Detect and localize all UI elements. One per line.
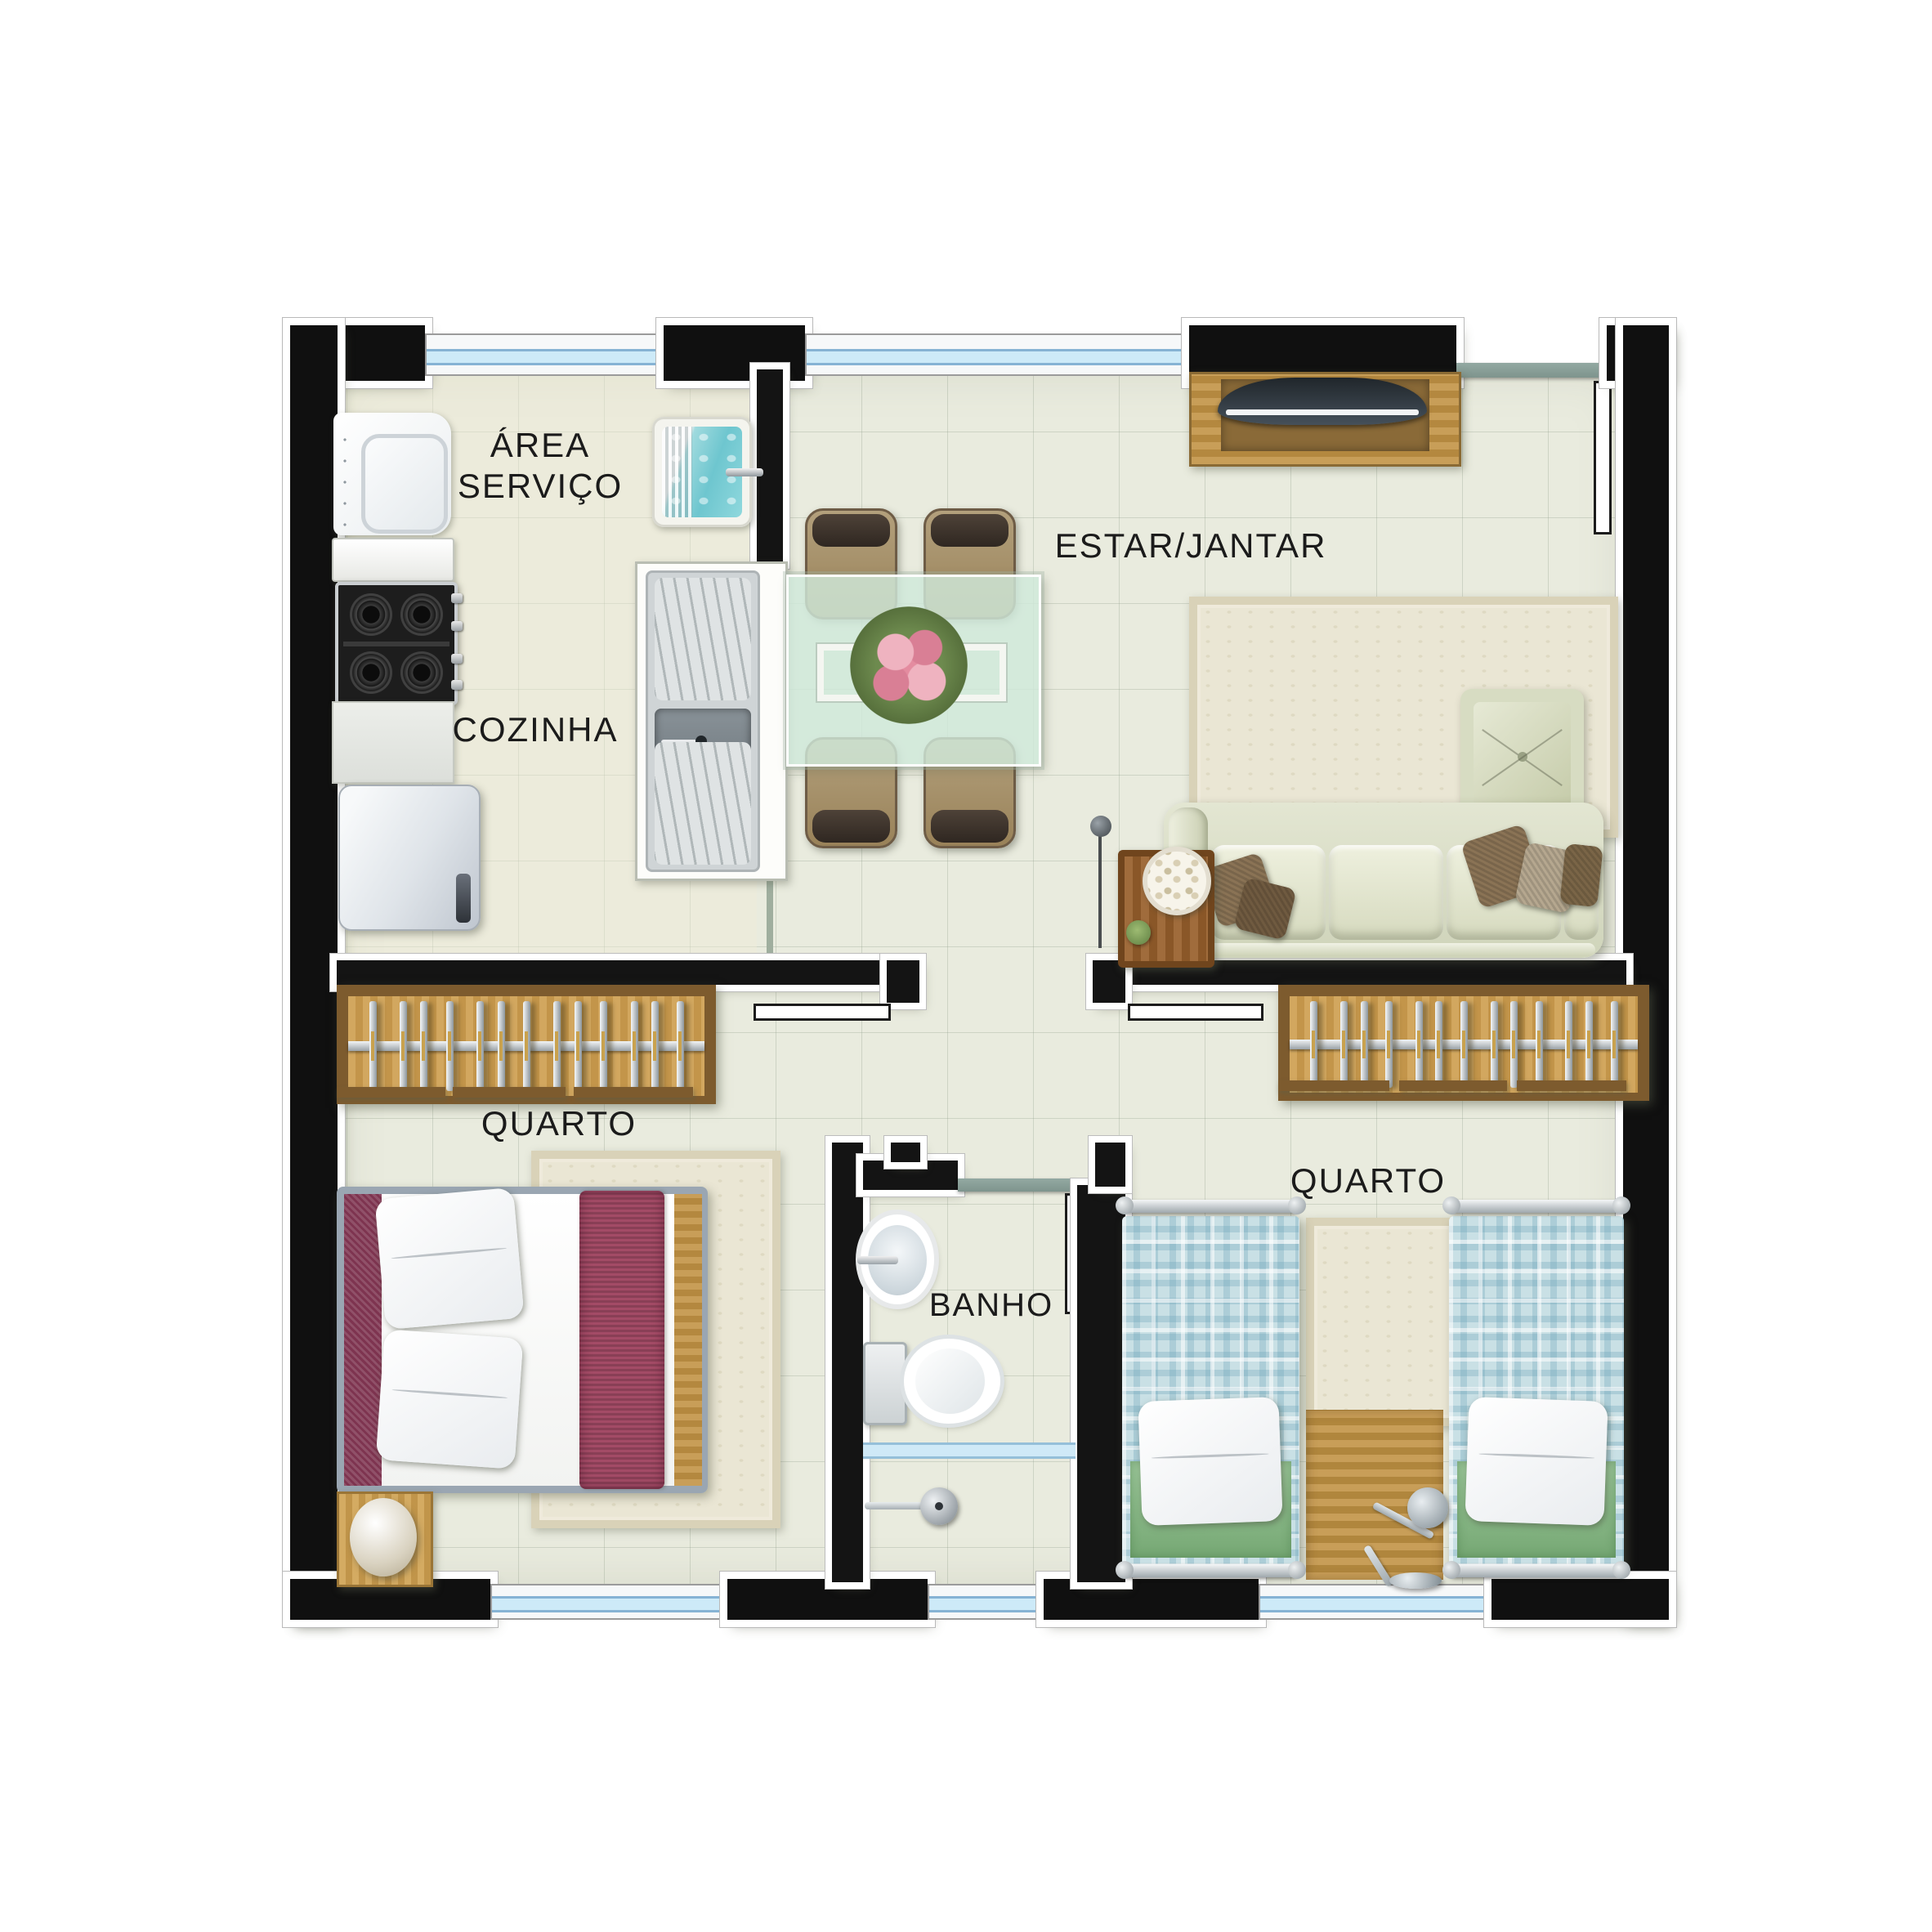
label-banho: BANHO [929, 1285, 1053, 1326]
window-bedroom-left [490, 1584, 731, 1620]
clothes-hanger [400, 1001, 407, 1091]
wardrobe-base-strip [453, 1087, 566, 1098]
clothes-hanger [1435, 1001, 1442, 1088]
burner [350, 593, 392, 636]
bed-foot-rail [1449, 1564, 1624, 1577]
laundry-tank-sink [652, 417, 752, 527]
refrigerator [338, 785, 481, 931]
clothes-hanger [1385, 1001, 1393, 1088]
wall-bottom-pier-3 [1044, 1579, 1259, 1620]
label-area-line1: ÁREA [458, 425, 623, 466]
kitchen-sink-unit [646, 570, 760, 872]
bedroom-right-door-leaf [1128, 1004, 1263, 1021]
clothes-hanger [575, 1001, 582, 1091]
bedroom-right-rug [1306, 1218, 1460, 1426]
wall-top-pier-2 [664, 325, 805, 381]
clothes-hanger [1415, 1001, 1423, 1088]
wardrobe-base-strip [337, 1087, 445, 1098]
wall-middle-left-jamb [887, 960, 919, 1003]
stove-cooktop [335, 582, 458, 705]
wall-right [1623, 325, 1669, 1620]
wall-left [290, 325, 338, 1620]
wardrobe-base-strip [1278, 1080, 1389, 1091]
bed-maroon-runner [579, 1191, 664, 1489]
wall-bathroom-jamb [891, 1143, 920, 1162]
chair-back [931, 514, 1008, 547]
tv-base-line [1226, 409, 1419, 415]
wardrobe-base-strip [1517, 1080, 1626, 1091]
sofa-front-edge [1172, 943, 1595, 956]
wall-bathroom-header [863, 1161, 958, 1190]
window-bedroom-right [1259, 1584, 1495, 1620]
clothes-hanger [631, 1001, 638, 1091]
tv [1218, 378, 1427, 425]
nightstand-lamp [350, 1498, 417, 1576]
wall-bathroom-left [832, 1143, 863, 1582]
clothes-hanger [651, 1001, 659, 1091]
window-glass [929, 1596, 1045, 1612]
label-quarto-right: QUARTO [1290, 1161, 1446, 1201]
floor-lamp-stem [1098, 830, 1102, 948]
popcorn-bowl [1143, 847, 1211, 915]
bed-head-rail [1122, 1200, 1299, 1213]
sink-tap [857, 1256, 898, 1264]
sofa-cushion [1329, 845, 1443, 940]
clothes-hanger [498, 1001, 505, 1091]
window-glass [1260, 1596, 1493, 1612]
clothes-hanger [369, 1001, 377, 1091]
desk-lamp-base [1389, 1572, 1442, 1589]
armchair-tuft [1474, 702, 1571, 811]
clothes-hanger [523, 1001, 530, 1091]
stove-center-bar [343, 642, 449, 646]
wall-bathroom-right-top [1095, 1143, 1125, 1187]
washing-machine-controls [342, 429, 348, 527]
clothes-hanger [446, 1001, 454, 1091]
chair-back [812, 514, 890, 547]
washing-machine [333, 413, 451, 535]
kitchen-dining-floor-divider [767, 876, 773, 963]
label-area-servico: ÁREA SERVIÇO [458, 425, 623, 507]
clothes-hanger [1565, 1001, 1572, 1088]
sofa-pillow [1559, 843, 1603, 907]
bed-pillow [376, 1329, 524, 1469]
wall-kitchen-living [757, 369, 783, 562]
chair-back [931, 810, 1008, 843]
label-quarto-left: QUARTO [481, 1103, 637, 1144]
entry-door-lintel [1456, 363, 1607, 378]
clothes-hanger [1340, 1001, 1348, 1088]
clothes-hanger [553, 1001, 561, 1091]
clothes-hanger [1585, 1001, 1593, 1088]
entry-door-leaf [1594, 381, 1612, 534]
bed-pillow [374, 1187, 524, 1330]
toilet-tank [863, 1342, 907, 1425]
clothes-hanger [1460, 1001, 1468, 1088]
sink-drainboard-top [655, 578, 751, 700]
wall-bathroom-right [1077, 1185, 1125, 1582]
wardrobe-hangers [348, 996, 704, 1096]
shower-arm [865, 1502, 924, 1509]
clothes-hanger [1361, 1001, 1368, 1088]
bed-head-rail [1449, 1200, 1624, 1213]
burner [350, 651, 392, 694]
clothes-hanger [600, 1001, 607, 1091]
shower-glass-partition [863, 1442, 1076, 1459]
wardrobe-base-strip [1399, 1080, 1507, 1091]
window-bathroom [928, 1584, 1047, 1620]
window-glass [427, 349, 665, 365]
clothes-hanger [1491, 1001, 1498, 1088]
wall-bottom-pier-2 [727, 1579, 928, 1620]
clothes-hanger [1536, 1001, 1543, 1088]
clothes-hanger [476, 1001, 484, 1091]
wall-middle-left [337, 960, 887, 985]
shower-head [920, 1487, 958, 1525]
window-glass [492, 1596, 729, 1612]
toilet-seat [915, 1348, 985, 1413]
bed-foot-rail [1122, 1564, 1299, 1577]
window-service-area [425, 333, 667, 376]
tank-faucet [726, 468, 763, 476]
floor-lamp-head [1090, 816, 1111, 837]
burner [400, 651, 443, 694]
wardrobe-hangers [1290, 996, 1638, 1093]
refrigerator-handle [456, 874, 471, 923]
laundry-shelf [332, 538, 454, 582]
desk-lamp-head [1407, 1487, 1448, 1528]
kitchen-sink-counter [635, 561, 788, 881]
label-estar-jantar: ESTAR/JANTAR [1055, 525, 1327, 566]
label-area-line2: SERVIÇO [458, 466, 623, 507]
flower-centerpiece [850, 606, 968, 724]
bathroom-sink [861, 1214, 934, 1304]
washing-machine-door [361, 434, 448, 534]
window-glass [807, 349, 1191, 365]
label-cozinha: COZINHA [453, 709, 619, 750]
clothes-hanger [1510, 1001, 1518, 1088]
bathroom-door-lintel [958, 1178, 1077, 1192]
stove-knob [451, 593, 463, 603]
tuft-button [1518, 752, 1527, 762]
kitchen-cabinet [332, 701, 454, 784]
bed-foot-bench [674, 1194, 702, 1486]
chair-back [812, 810, 890, 843]
clothes-hanger [420, 1001, 427, 1091]
bed-pillow [1138, 1397, 1282, 1526]
clothes-hanger [1611, 1001, 1618, 1088]
small-bowl [1126, 920, 1151, 945]
clothes-hanger [1310, 1001, 1317, 1088]
floor-plan-canvas: ÁREA SERVIÇO COZINHA ESTAR/JANTAR QUARTO… [0, 0, 1932, 1932]
sink-drainboard-bottom [655, 742, 751, 865]
wardrobe-base-strip [574, 1087, 693, 1098]
burner [400, 593, 443, 636]
window-living-room [805, 333, 1192, 376]
stove-knob [451, 680, 463, 690]
bed-pillow [1465, 1397, 1608, 1526]
clothes-hanger [677, 1001, 684, 1091]
stove-knob [451, 621, 463, 631]
wall-bottom-pier-4 [1491, 1579, 1669, 1620]
stove-knob [451, 654, 463, 664]
bedroom-left-door-leaf [754, 1004, 891, 1021]
